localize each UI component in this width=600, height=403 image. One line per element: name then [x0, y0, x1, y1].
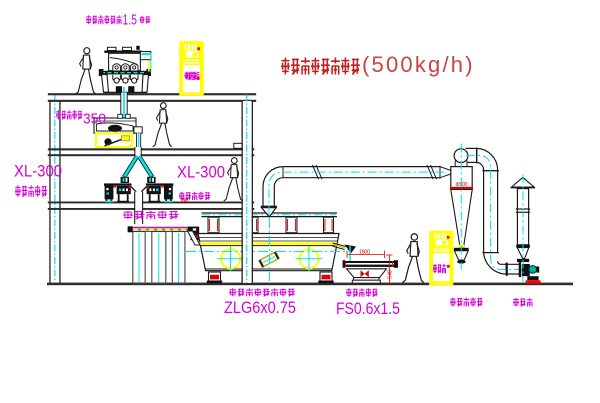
svg-text:1.5: 1.5	[122, 12, 137, 28]
svg-text:2500: 2500	[181, 198, 189, 204]
svg-text:1500: 1500	[359, 250, 370, 256]
svg-text:XL-300: XL-300	[14, 163, 62, 181]
svg-text:ZLG6x0.75: ZLG6x0.75	[224, 299, 296, 317]
svg-text:350: 350	[83, 111, 106, 128]
svg-text:540: 540	[388, 270, 394, 279]
svg-text:XL-300: XL-300	[177, 164, 225, 182]
svg-text:FS0.6x1.5: FS0.6x1.5	[336, 300, 400, 318]
svg-text:(500kg/h): (500kg/h)	[362, 52, 475, 77]
